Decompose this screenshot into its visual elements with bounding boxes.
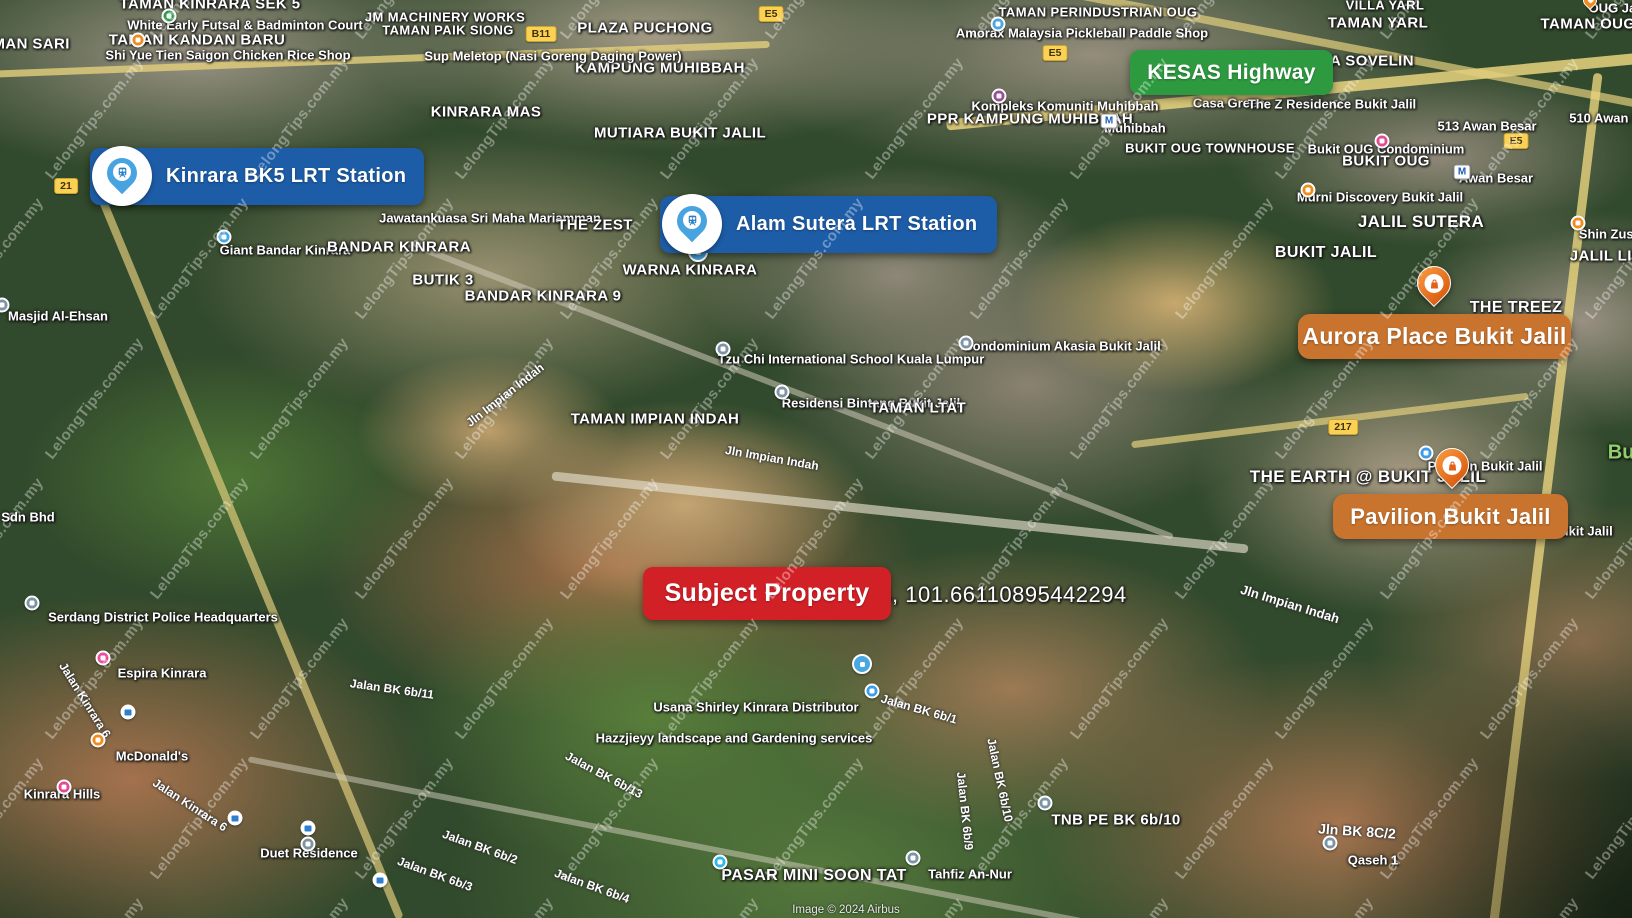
map-label: TAMAN YARL [1328, 15, 1428, 32]
map-label: Murni Discovery Bukit Jalil [1297, 190, 1463, 205]
map-label: TAMAN OUG [1541, 16, 1632, 33]
map-label: PASAR MINI SOON TAT [721, 867, 906, 885]
lrt-train-pin-icon [92, 146, 152, 206]
map-label: BUKIT OUG TOWNHOUSE [1125, 141, 1295, 156]
map-label: Masjid Al-Ehsan [8, 309, 108, 324]
map-label: TAMAN KINRARA SEK 5 [120, 0, 301, 13]
map-label: BUKIT OUG [1342, 153, 1430, 170]
poi-icon [25, 596, 40, 611]
route-badge: 217 [1328, 419, 1358, 435]
government-icon [1038, 796, 1053, 811]
shopping-icon [217, 230, 232, 245]
shopping-icon [991, 17, 1006, 32]
callout-label: Alam Sutera LRT Station [736, 213, 977, 236]
bus-icon [301, 821, 316, 836]
map-label: 510 Awan besar [1569, 111, 1632, 126]
map-label: Image © 2024 Airbus [792, 904, 900, 916]
bus-icon [121, 705, 136, 720]
callout-pavilion-bukit-jalil: Pavilion Bukit Jalil [1333, 494, 1568, 539]
callout-label: Aurora Place Bukit Jalil [1302, 323, 1566, 350]
lrt-train-pin-icon [662, 194, 722, 254]
bus-icon [373, 873, 388, 888]
map-label: Qaseh 1 [1348, 853, 1399, 868]
map-label: Espira Kinrara [118, 666, 207, 681]
map-label: TNB PE BK 6b/10 [1051, 812, 1180, 829]
map-label: Tahfiz An-Nur [928, 867, 1012, 882]
map-label: Tzu Chi International School Kuala Lumpu… [718, 352, 985, 367]
map-label: THE ZEST [557, 217, 633, 234]
map-label: Bukit Jalil [1608, 442, 1632, 465]
map-label: BUKIT JALIL [1275, 244, 1377, 262]
shopping-bag-icon [1428, 278, 1440, 290]
map-label: JALIL LINK [1570, 248, 1632, 265]
poi-icon [959, 336, 974, 351]
restaurant-icon [1571, 216, 1586, 231]
map-label: Sup Meletop (Nasi Goreng Daging Power) [424, 49, 681, 64]
map-label: A SOVELIN [1330, 53, 1414, 70]
bus-icon [228, 811, 243, 826]
callout-kesas-highway: KESAS Highway [1130, 50, 1333, 95]
map-label: KINRARA MAS [431, 104, 542, 121]
map-label: 4, 101.66110895442294 [879, 582, 1126, 608]
map-label: TAMAN LTAT [870, 400, 966, 417]
route-badge: 21 [54, 178, 78, 194]
map-label: PLAZA PUCHONG [577, 20, 712, 37]
route-badge: E5 [1504, 133, 1529, 149]
hotel-icon [57, 780, 72, 795]
poi-icon [301, 837, 316, 852]
callout-label: KESAS Highway [1147, 61, 1315, 85]
school-icon [906, 851, 921, 866]
train-icon [116, 166, 129, 179]
callout-label: Kinrara BK5 LRT Station [166, 165, 406, 188]
map-label: MUTIARA BUKIT JALIL [594, 125, 766, 142]
poi-icon [1323, 836, 1338, 851]
shopping-bag-pin-icon [1414, 266, 1454, 318]
map-label: VILLA YARL [1346, 0, 1425, 13]
restaurant-icon [91, 733, 106, 748]
map-label: Hazzjieyy landscape and Gardening servic… [596, 731, 873, 746]
map-label: JALIL SUTERA [1358, 212, 1484, 232]
station-icon [852, 654, 872, 674]
callout-label: Subject Property [665, 579, 870, 608]
map-label: McDonald's [116, 749, 188, 764]
map-label: The Z Residence Bukit Jalil [1248, 97, 1416, 112]
route-badge: B11 [526, 26, 557, 42]
poi-icon [131, 33, 146, 48]
shopping-icon [713, 855, 728, 870]
callout-kinrara-bk5-lrt: Kinrara BK5 LRT Station [90, 148, 424, 205]
callout-alam-sutera-lrt: Alam Sutera LRT Station [660, 196, 997, 253]
map-label: Shi Yue Tien Saigon Chicken Rice Shop [105, 48, 350, 63]
map-label: BUTIK 3 [412, 272, 473, 289]
map-label: TAMAN PERINDUSTRIAN OUG [999, 5, 1198, 20]
map-label: Usana Shirley Kinrara Distributor [653, 700, 858, 715]
restaurant-icon [1301, 183, 1316, 198]
route-badge: E5 [1043, 45, 1068, 61]
poi-icon [1375, 134, 1390, 149]
map-label: TAMAN PAIK SIONG [382, 23, 514, 38]
sports-icon [162, 9, 177, 24]
map-label: 513 Awan Besar [1437, 119, 1536, 134]
lock-icon [865, 684, 880, 699]
metro-icon: M [1454, 165, 1471, 180]
map-label: BANDAR KINRARA [327, 239, 471, 256]
shopping-bag-icon [1446, 460, 1458, 472]
map-label: BANDAR KINRARA 9 [465, 288, 622, 305]
map-label: TAMAN IMPIAN INDAH [571, 411, 740, 428]
map-label: Condominium Akasia Bukit Jalil [963, 339, 1160, 354]
train-icon [686, 214, 699, 227]
map-label: Shin Zushi [1579, 227, 1632, 242]
shopping-bag-pin-icon [1432, 448, 1472, 500]
callout-subject-property: Subject Property [643, 567, 891, 620]
poi-icon [775, 385, 790, 400]
metro-icon: M [1101, 114, 1118, 129]
satellite-map: TAMAN KINRARA SEK 5White Early Futsal & … [0, 0, 1632, 918]
community-icon [992, 89, 1007, 104]
callout-aurora-place: Aurora Place Bukit Jalil [1298, 314, 1571, 359]
map-label: WARNA KINRARA [623, 262, 758, 279]
map-label: Sdn Bhd [1, 510, 54, 525]
route-badge: E5 [759, 6, 784, 22]
callout-label: Pavilion Bukit Jalil [1350, 504, 1550, 530]
map-label: Serdang District Police Headquarters [48, 610, 278, 625]
school-icon [716, 342, 731, 357]
attraction-icon [96, 651, 111, 666]
map-label: TAMAN AMAN SARI [0, 36, 70, 53]
